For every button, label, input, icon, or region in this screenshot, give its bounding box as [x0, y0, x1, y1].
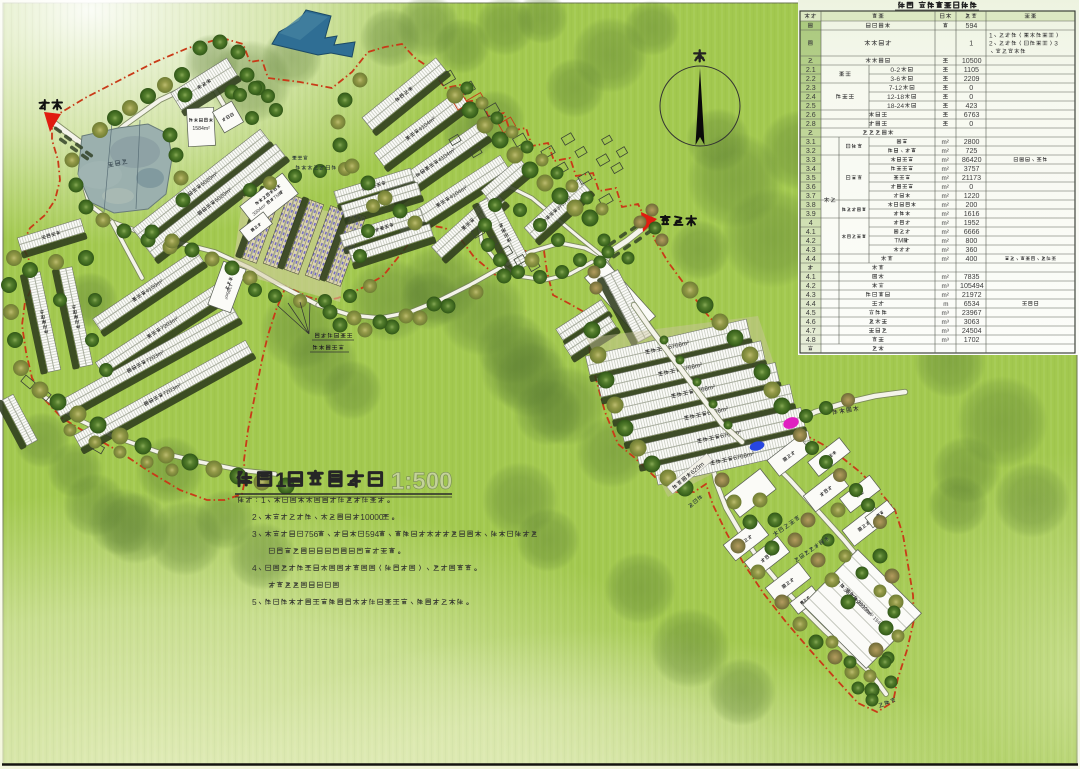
- svg-text:3: 3: [252, 529, 257, 539]
- svg-text:6763: 6763: [964, 111, 980, 119]
- svg-text:4.3: 4.3: [806, 291, 816, 299]
- svg-text:m²: m²: [942, 175, 949, 182]
- svg-text:1616: 1616: [964, 210, 980, 218]
- svg-text:4: 4: [252, 563, 257, 573]
- svg-text:2.4: 2.4: [806, 93, 816, 101]
- svg-text:2.2: 2.2: [806, 75, 816, 83]
- svg-text:3.3: 3.3: [806, 156, 816, 164]
- svg-text:23967: 23967: [962, 309, 982, 317]
- svg-text:m²: m²: [942, 211, 949, 218]
- svg-text:1220: 1220: [964, 192, 980, 200]
- svg-text:4: 4: [809, 219, 813, 227]
- svg-text:2.8: 2.8: [806, 120, 816, 128]
- svg-text:3757: 3757: [964, 165, 980, 173]
- svg-text:6534: 6534: [964, 300, 980, 308]
- svg-text:2: 2: [252, 512, 257, 522]
- svg-text:m²: m²: [942, 157, 949, 164]
- svg-text:1: 1: [275, 469, 287, 492]
- svg-text:3.6: 3.6: [806, 183, 816, 191]
- svg-text:m²: m²: [942, 139, 949, 146]
- svg-text:0: 0: [969, 183, 973, 191]
- svg-text:360: 360: [966, 246, 978, 254]
- svg-text:1: 1: [261, 495, 266, 505]
- svg-text:m²: m²: [942, 184, 949, 191]
- svg-text:423: 423: [966, 102, 978, 110]
- svg-text:12-18: 12-18: [887, 94, 904, 101]
- svg-text:4.3: 4.3: [806, 246, 816, 254]
- svg-text:4.2: 4.2: [806, 282, 816, 290]
- svg-text:0: 0: [969, 120, 973, 128]
- svg-text:1105: 1105: [964, 66, 979, 74]
- svg-text:800: 800: [966, 237, 978, 245]
- svg-text:594: 594: [966, 22, 978, 30]
- svg-text:7-12: 7-12: [889, 85, 903, 92]
- svg-text:7835: 7835: [964, 273, 980, 281]
- svg-text:4.4: 4.4: [806, 255, 816, 263]
- svg-text:0: 0: [969, 84, 973, 92]
- svg-text:86420: 86420: [962, 156, 982, 164]
- svg-text:m²: m²: [942, 220, 949, 227]
- svg-text:m²: m²: [942, 256, 949, 263]
- svg-text:m²: m²: [942, 202, 949, 209]
- svg-text:m²: m²: [942, 292, 949, 299]
- svg-text:1702: 1702: [964, 336, 980, 344]
- svg-text:3.1: 3.1: [806, 138, 816, 146]
- svg-text:756: 756: [304, 529, 318, 539]
- svg-text:m³: m³: [942, 283, 949, 290]
- svg-text:105494: 105494: [960, 282, 984, 290]
- svg-text:5: 5: [252, 597, 257, 607]
- svg-text:4.1: 4.1: [806, 273, 816, 281]
- svg-text:594: 594: [365, 529, 379, 539]
- svg-text:10000: 10000: [360, 512, 384, 522]
- svg-text:4.6: 4.6: [806, 318, 816, 326]
- svg-text:m²: m²: [942, 247, 949, 254]
- svg-text:21972: 21972: [962, 291, 982, 299]
- svg-text:m²: m²: [942, 229, 949, 236]
- svg-text:2.1: 2.1: [806, 66, 816, 74]
- svg-text:3063: 3063: [964, 318, 980, 326]
- svg-text:m³: m³: [942, 337, 949, 344]
- svg-text:3.4: 3.4: [806, 165, 816, 173]
- svg-text:4.4: 4.4: [806, 300, 816, 308]
- svg-text:3.8: 3.8: [806, 201, 816, 209]
- svg-text:4.8: 4.8: [806, 336, 816, 344]
- svg-text:2.3: 2.3: [806, 84, 816, 92]
- svg-text:4.7: 4.7: [806, 327, 816, 335]
- svg-text:10500: 10500: [962, 57, 982, 65]
- svg-text:3-6: 3-6: [890, 76, 900, 83]
- svg-text:18-24: 18-24: [887, 103, 904, 110]
- svg-text:m²: m²: [942, 238, 949, 245]
- svg-text:2: 2: [989, 41, 993, 48]
- svg-text:1: 1: [989, 33, 993, 40]
- svg-text:3.7: 3.7: [806, 192, 816, 200]
- svg-text:2.5: 2.5: [806, 102, 816, 110]
- svg-text:200: 200: [966, 201, 978, 209]
- svg-text:m³: m³: [942, 319, 949, 326]
- svg-text:4.5: 4.5: [806, 309, 816, 317]
- svg-text:4.2: 4.2: [806, 237, 816, 245]
- svg-text:1:500: 1:500: [391, 468, 452, 495]
- svg-text:2209: 2209: [964, 75, 980, 83]
- svg-text:m³: m³: [942, 328, 949, 335]
- svg-text:0: 0: [969, 93, 973, 101]
- svg-text:24504: 24504: [962, 327, 982, 335]
- svg-text:3: 3: [1054, 41, 1058, 48]
- svg-text:2.6: 2.6: [806, 111, 816, 119]
- svg-text:3.9: 3.9: [806, 210, 816, 218]
- svg-text:1952: 1952: [964, 219, 980, 227]
- svg-text:2800: 2800: [964, 138, 980, 146]
- svg-text:21173: 21173: [962, 174, 981, 182]
- svg-text:m²: m²: [942, 274, 949, 281]
- svg-text:m³: m³: [942, 310, 949, 317]
- svg-text:4.1: 4.1: [806, 228, 816, 236]
- svg-text:725: 725: [966, 147, 978, 155]
- svg-text:TMR: TMR: [894, 238, 908, 245]
- svg-text:m²: m²: [942, 166, 949, 173]
- svg-text:3.5: 3.5: [806, 174, 816, 182]
- svg-text:1: 1: [969, 40, 973, 48]
- svg-text:3.2: 3.2: [806, 147, 816, 155]
- svg-text:m²: m²: [942, 193, 949, 200]
- svg-text:1584m²: 1584m²: [192, 126, 210, 132]
- svg-text:6666: 6666: [964, 228, 980, 236]
- svg-text:0-2: 0-2: [890, 67, 900, 74]
- svg-text:400: 400: [966, 255, 978, 263]
- svg-text:m²: m²: [942, 148, 949, 155]
- svg-text:m: m: [943, 301, 948, 308]
